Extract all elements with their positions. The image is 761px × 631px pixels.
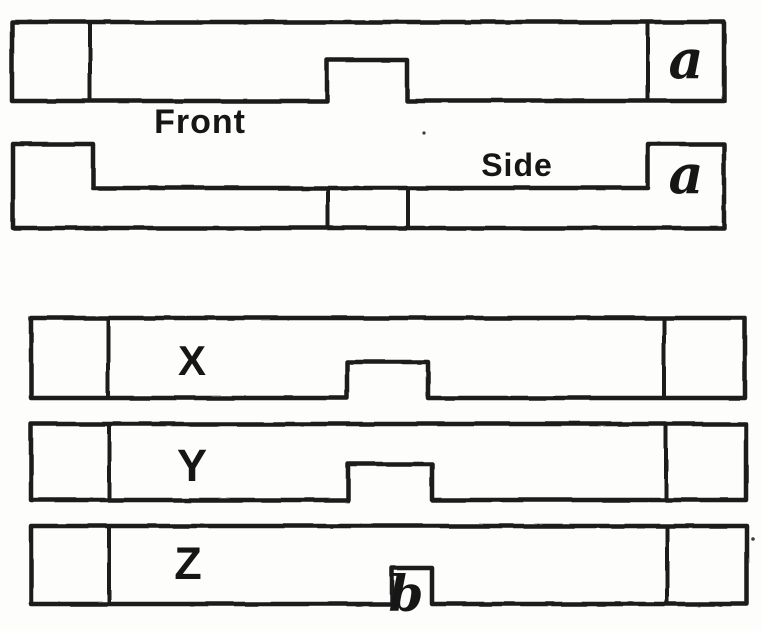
option-z-label: Z — [165, 541, 211, 585]
side-view-caption: Side — [470, 146, 564, 184]
line-drawing — [0, 0, 761, 631]
option-y-outline — [31, 424, 746, 500]
option-y-label: Y — [171, 443, 213, 487]
drawing-sheet: Front a Side a X Y Z b — [0, 0, 761, 631]
paper-speck — [751, 537, 755, 541]
option-x-outline — [31, 318, 745, 398]
front-view-end-block-label: a — [663, 36, 709, 82]
option-z-notch-label: b — [389, 566, 423, 622]
front-view-outline — [12, 22, 724, 101]
paper-speck — [422, 131, 425, 134]
side-view-outline — [13, 144, 724, 228]
side-view-end-block-label: a — [663, 150, 709, 198]
front-view-caption: Front — [150, 103, 250, 141]
option-x-label: X — [171, 341, 213, 381]
